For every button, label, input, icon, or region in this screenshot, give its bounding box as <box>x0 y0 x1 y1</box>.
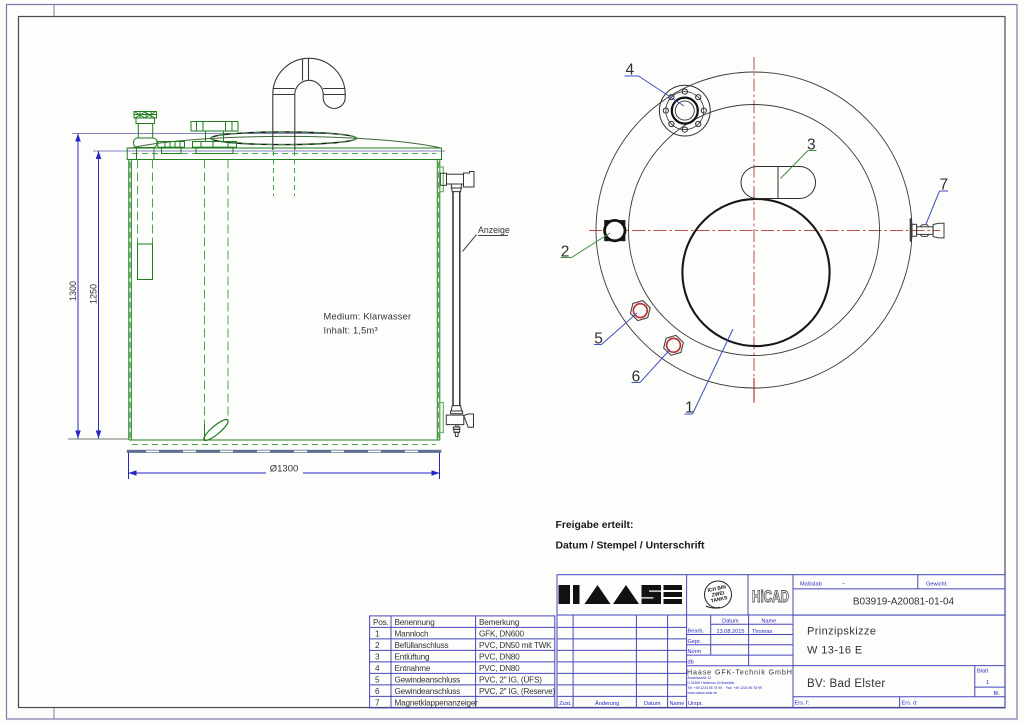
svg-text:B03919-A20081-01-04: B03919-A20081-01-04 <box>853 597 955 608</box>
svg-text:GFK, DN600: GFK, DN600 <box>479 629 525 638</box>
svg-text:5: 5 <box>375 675 380 684</box>
svg-text:Entlüftung: Entlüftung <box>395 652 431 661</box>
svg-text:PVC, DN50 mit TWK: PVC, DN50 mit TWK <box>479 641 552 650</box>
svg-text:Entnahme: Entnahme <box>395 664 431 673</box>
svg-text:Datum: Datum <box>722 618 739 624</box>
svg-text:Gewicht:: Gewicht: <box>926 582 948 588</box>
svg-text:Änderung: Änderung <box>595 700 619 707</box>
svg-text:2: 2 <box>561 244 570 261</box>
svg-text:Medium: Klarwasser: Medium: Klarwasser <box>324 312 412 322</box>
svg-text:D 01809 Heidenau-Großsedlitz: D 01809 Heidenau-Großsedlitz <box>688 681 735 685</box>
svg-text:db: db <box>688 659 694 665</box>
svg-text:Ers. d:: Ers. d: <box>902 701 919 707</box>
svg-text:4: 4 <box>375 664 380 673</box>
svg-text:Mannloch: Mannloch <box>395 629 430 638</box>
svg-text:Freigabe erteilt:: Freigabe erteilt: <box>556 520 634 531</box>
svg-text:Datum / Stempel / Unterschrift: Datum / Stempel / Unterschrift <box>556 541 705 552</box>
svg-text:Blatt: Blatt <box>977 669 989 675</box>
svg-text:Prinzipskizze: Prinzipskizze <box>807 626 876 638</box>
svg-text:1: 1 <box>986 680 989 686</box>
svg-text:HiCAD: HiCAD <box>752 588 789 606</box>
svg-text:Tel. +49 1234 56 78 90 Fax.: Tel. +49 1234 56 78 90 Fax. +49 1234 56 … <box>688 686 762 690</box>
svg-text:W 13-16 E: W 13-16 E <box>807 645 863 657</box>
svg-text:Gepr.: Gepr. <box>688 639 702 645</box>
svg-text:Bearb.: Bearb. <box>688 629 705 635</box>
svg-text:Gewindeanschluss: Gewindeanschluss <box>395 687 461 696</box>
svg-text:Thomas: Thomas <box>752 629 772 635</box>
svg-text:Datum: Datum <box>644 701 661 707</box>
svg-text:PVC, DN80: PVC, DN80 <box>479 664 520 673</box>
svg-text:Zust.: Zust. <box>559 701 572 707</box>
svg-text:PVC, 2" IG, (Reserve): PVC, 2" IG, (Reserve) <box>479 687 556 696</box>
svg-text:Gewindeanschluss: Gewindeanschluss <box>395 675 461 684</box>
svg-text:Norm: Norm <box>688 649 702 655</box>
svg-text:7: 7 <box>375 698 380 707</box>
svg-text:6: 6 <box>375 687 380 696</box>
svg-text:PVC, DN80: PVC, DN80 <box>479 652 520 661</box>
svg-text:Benennung: Benennung <box>395 618 436 627</box>
svg-text:Urspr.: Urspr. <box>688 701 703 707</box>
svg-text:Bl.: Bl. <box>994 691 1001 697</box>
svg-text:1250: 1250 <box>89 284 99 304</box>
svg-text:Ers. f:: Ers. f: <box>795 701 810 707</box>
svg-text:BV: Bad Elster: BV: Bad Elster <box>807 678 886 690</box>
svg-text:Amselstraße 12: Amselstraße 12 <box>688 676 712 680</box>
svg-text:1: 1 <box>375 629 380 638</box>
svg-text:PVC, 2" IG, (ÜFS): PVC, 2" IG, (ÜFS) <box>479 674 542 684</box>
svg-text:Inhalt: 1,5m³: Inhalt: 1,5m³ <box>324 326 378 336</box>
svg-text:Befüllanschluss: Befüllanschluss <box>395 641 449 650</box>
svg-text:1300: 1300 <box>68 281 78 301</box>
svg-text:Name: Name <box>761 618 776 624</box>
svg-text:−: − <box>842 582 845 588</box>
svg-text:2: 2 <box>375 641 380 650</box>
svg-text:Pos.: Pos. <box>373 618 389 627</box>
svg-text:Name: Name <box>670 701 685 707</box>
svg-text:3: 3 <box>375 652 380 661</box>
svg-text:Ø1300: Ø1300 <box>270 464 299 475</box>
svg-text:Bemerkung: Bemerkung <box>479 618 520 627</box>
svg-text:www.haase-tank.de: www.haase-tank.de <box>688 691 718 695</box>
svg-text:Anzeige: Anzeige <box>478 225 510 235</box>
svg-text:13.08.2015: 13.08.2015 <box>717 629 745 635</box>
svg-text:Magnetklappenanzeiger: Magnetklappenanzeiger <box>395 698 479 707</box>
svg-text:Maßstab: Maßstab <box>800 582 822 588</box>
